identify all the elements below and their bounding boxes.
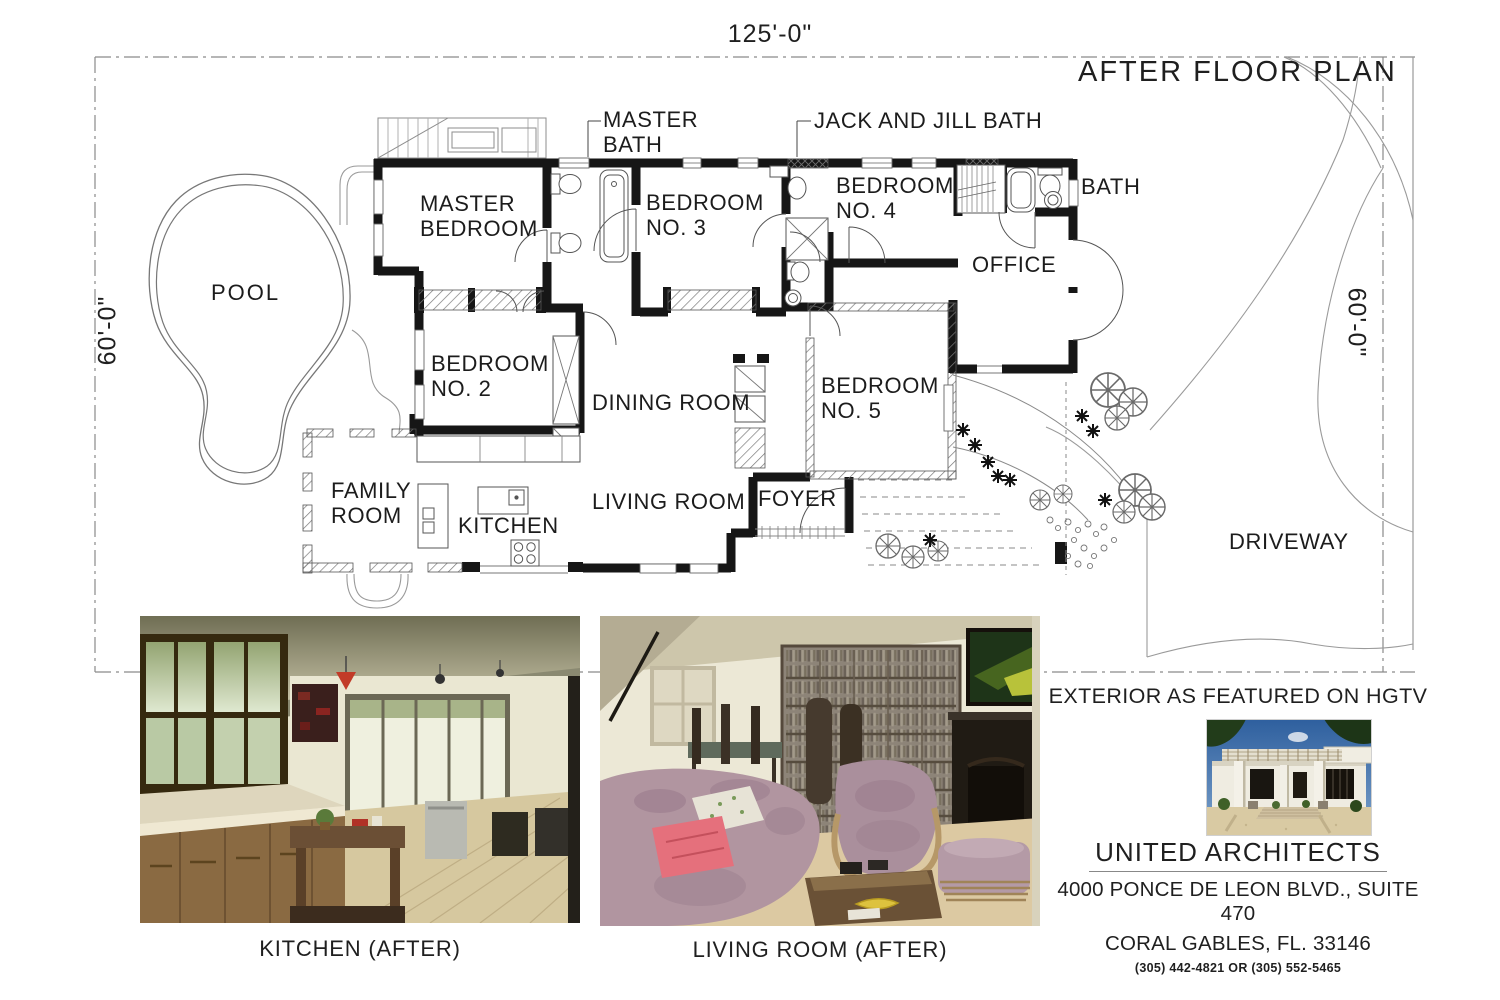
sheet-title: AFTER FLOOR PLAN [1078, 56, 1397, 89]
dimension-top: 125'-0" [670, 20, 870, 49]
deck-stairs [378, 118, 546, 158]
exterior-photo [1206, 719, 1372, 836]
room-label-bedroom-3: BEDROOM NO. 3 [646, 191, 764, 240]
floor-plan-sheet: AFTER FLOOR PLAN 125'-0" 60'-0" 60'-0" M… [0, 0, 1500, 1000]
room-label-office: OFFICE [972, 253, 1056, 278]
exterior-heading: EXTERIOR AS FEATURED ON HGTV [1046, 684, 1430, 709]
site-label-pool: POOL [211, 281, 280, 306]
room-label-bath: BATH [1081, 175, 1140, 200]
pool-shape [149, 174, 350, 484]
firm-address-line2: CORAL GABLES, FL. 33146 [1046, 932, 1430, 956]
room-label-dining-room: DINING ROOM [592, 391, 750, 416]
room-label-bedroom-2: BEDROOM NO. 2 [431, 352, 549, 401]
room-label-family-room: FAMILY ROOM [331, 479, 411, 528]
site-label-driveway: DRIVEWAY [1229, 530, 1349, 555]
room-label-master-bedroom: MASTER BEDROOM [420, 192, 538, 241]
dimension-left: 60'-0" [94, 281, 123, 381]
firm-phone: (305) 442-4821 OR (305) 552-5465 [1046, 961, 1430, 975]
room-label-jack-and-jill-bath: JACK AND JILL BATH [814, 109, 1042, 134]
room-label-bedroom-4: BEDROOM NO. 4 [836, 174, 954, 223]
room-label-bedroom-5: BEDROOM NO. 5 [821, 374, 939, 423]
property-boundary [95, 57, 1415, 672]
room-label-living-room: LIVING ROOM [592, 490, 745, 515]
kitchen-photo [140, 616, 580, 923]
living-room-photo-caption: LIVING ROOM (AFTER) [600, 937, 1040, 963]
firm-name: UNITED ARCHITECTS [1046, 837, 1430, 872]
dimension-right: 60'-0" [1342, 273, 1371, 373]
room-label-master-bath: MASTER BATH [603, 108, 698, 157]
room-label-foyer: FOYER [758, 487, 837, 512]
firm-address-line1: 4000 PONCE DE LEON BLVD., SUITE 470 [1046, 878, 1430, 926]
living-room-photo [600, 616, 1040, 926]
kitchen-photo-caption: KITCHEN (AFTER) [140, 936, 580, 962]
room-label-kitchen: KITCHEN [458, 514, 559, 539]
